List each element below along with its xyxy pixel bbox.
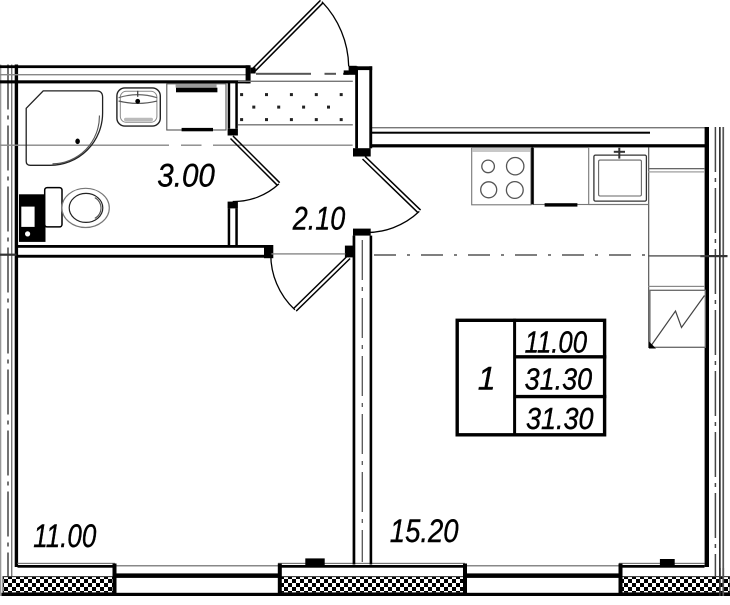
- svg-text:11.00: 11.00: [525, 325, 588, 360]
- svg-text:31.30: 31.30: [525, 363, 592, 397]
- svg-text:2.10: 2.10: [292, 201, 346, 237]
- svg-text:15.20: 15.20: [390, 514, 459, 550]
- svg-text:31.30: 31.30: [526, 403, 593, 437]
- svg-text:1: 1: [478, 361, 496, 397]
- svg-text:3.00: 3.00: [157, 157, 215, 194]
- svg-text:11.00: 11.00: [33, 518, 97, 554]
